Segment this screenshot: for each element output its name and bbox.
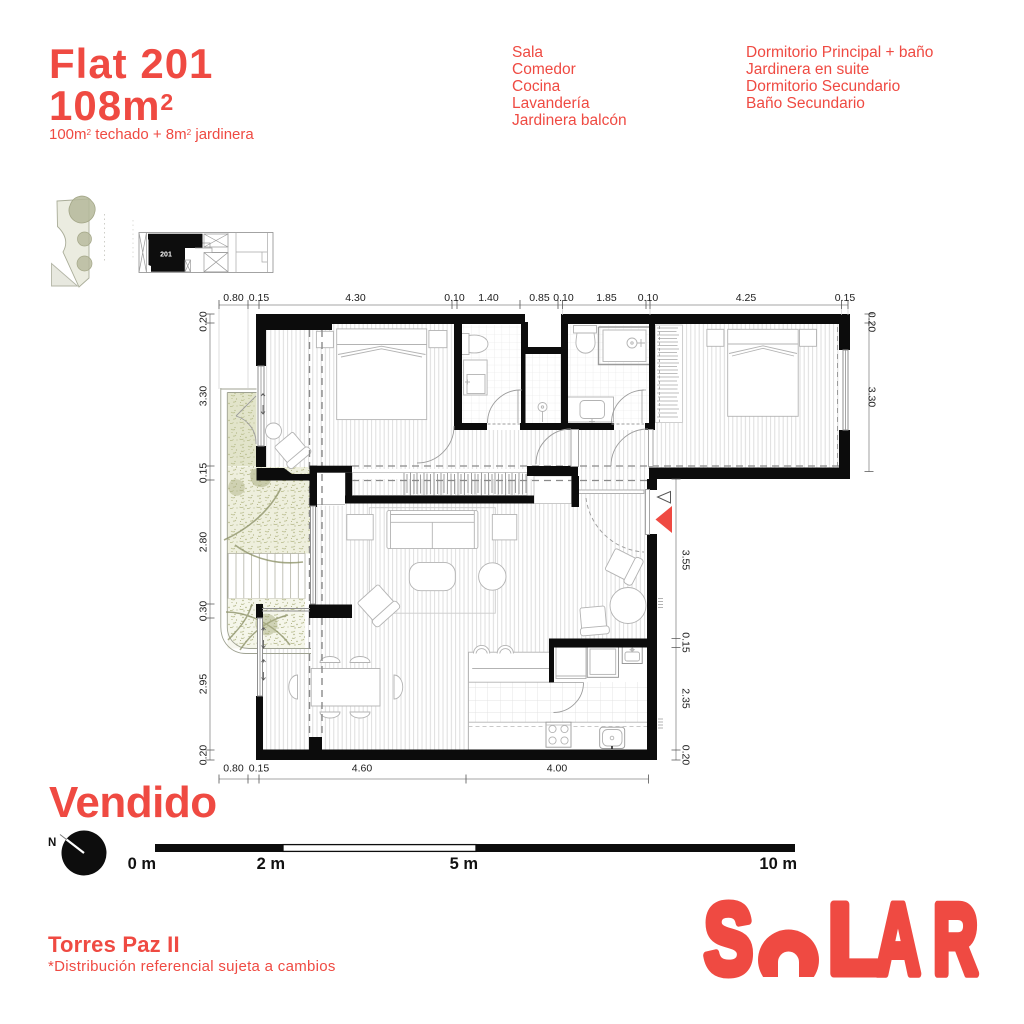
- svg-text:0.15: 0.15: [249, 763, 270, 775]
- svg-text:0.80: 0.80: [223, 292, 244, 304]
- svg-text:S: S: [704, 884, 753, 996]
- svg-text:0.15: 0.15: [198, 463, 210, 484]
- svg-text:0.10: 0.10: [553, 292, 574, 304]
- svg-text:0.15: 0.15: [249, 292, 270, 304]
- svg-text:0.15: 0.15: [835, 292, 856, 304]
- svg-text:5 m: 5 m: [450, 855, 478, 873]
- svg-text:3.55: 3.55: [680, 550, 692, 571]
- svg-text:4.60: 4.60: [352, 763, 373, 775]
- svg-text:3.30: 3.30: [866, 387, 878, 408]
- svg-text:0.10: 0.10: [638, 292, 659, 304]
- svg-text:3.30: 3.30: [198, 386, 210, 407]
- svg-text:0.30: 0.30: [198, 601, 210, 622]
- svg-text:4.30: 4.30: [345, 292, 366, 304]
- svg-text:10 m: 10 m: [759, 855, 797, 873]
- svg-text:0.20: 0.20: [198, 311, 210, 332]
- svg-text:1.85: 1.85: [596, 292, 617, 304]
- svg-text:L: L: [828, 884, 880, 996]
- svg-text:0.15: 0.15: [680, 632, 692, 653]
- svg-text:0.20: 0.20: [680, 745, 692, 766]
- svg-text:4.00: 4.00: [547, 763, 568, 775]
- svg-text:2.80: 2.80: [198, 532, 210, 553]
- svg-text:2 m: 2 m: [257, 855, 285, 873]
- svg-text:201: 201: [160, 252, 172, 259]
- svg-text:R: R: [933, 884, 978, 996]
- svg-text:N: N: [48, 837, 56, 849]
- svg-text:4.25: 4.25: [736, 292, 757, 304]
- svg-text:0.80: 0.80: [223, 763, 244, 775]
- svg-text:A: A: [876, 884, 921, 996]
- svg-text:2.95: 2.95: [198, 674, 210, 695]
- svg-text:0 m: 0 m: [128, 855, 156, 873]
- svg-text:0.85: 0.85: [529, 292, 550, 304]
- svg-text:0.10: 0.10: [444, 292, 465, 304]
- svg-text:1.40: 1.40: [478, 292, 499, 304]
- svg-text:2.35: 2.35: [680, 688, 692, 709]
- svg-text:0.20: 0.20: [198, 745, 210, 766]
- svg-text:0.20: 0.20: [866, 312, 878, 333]
